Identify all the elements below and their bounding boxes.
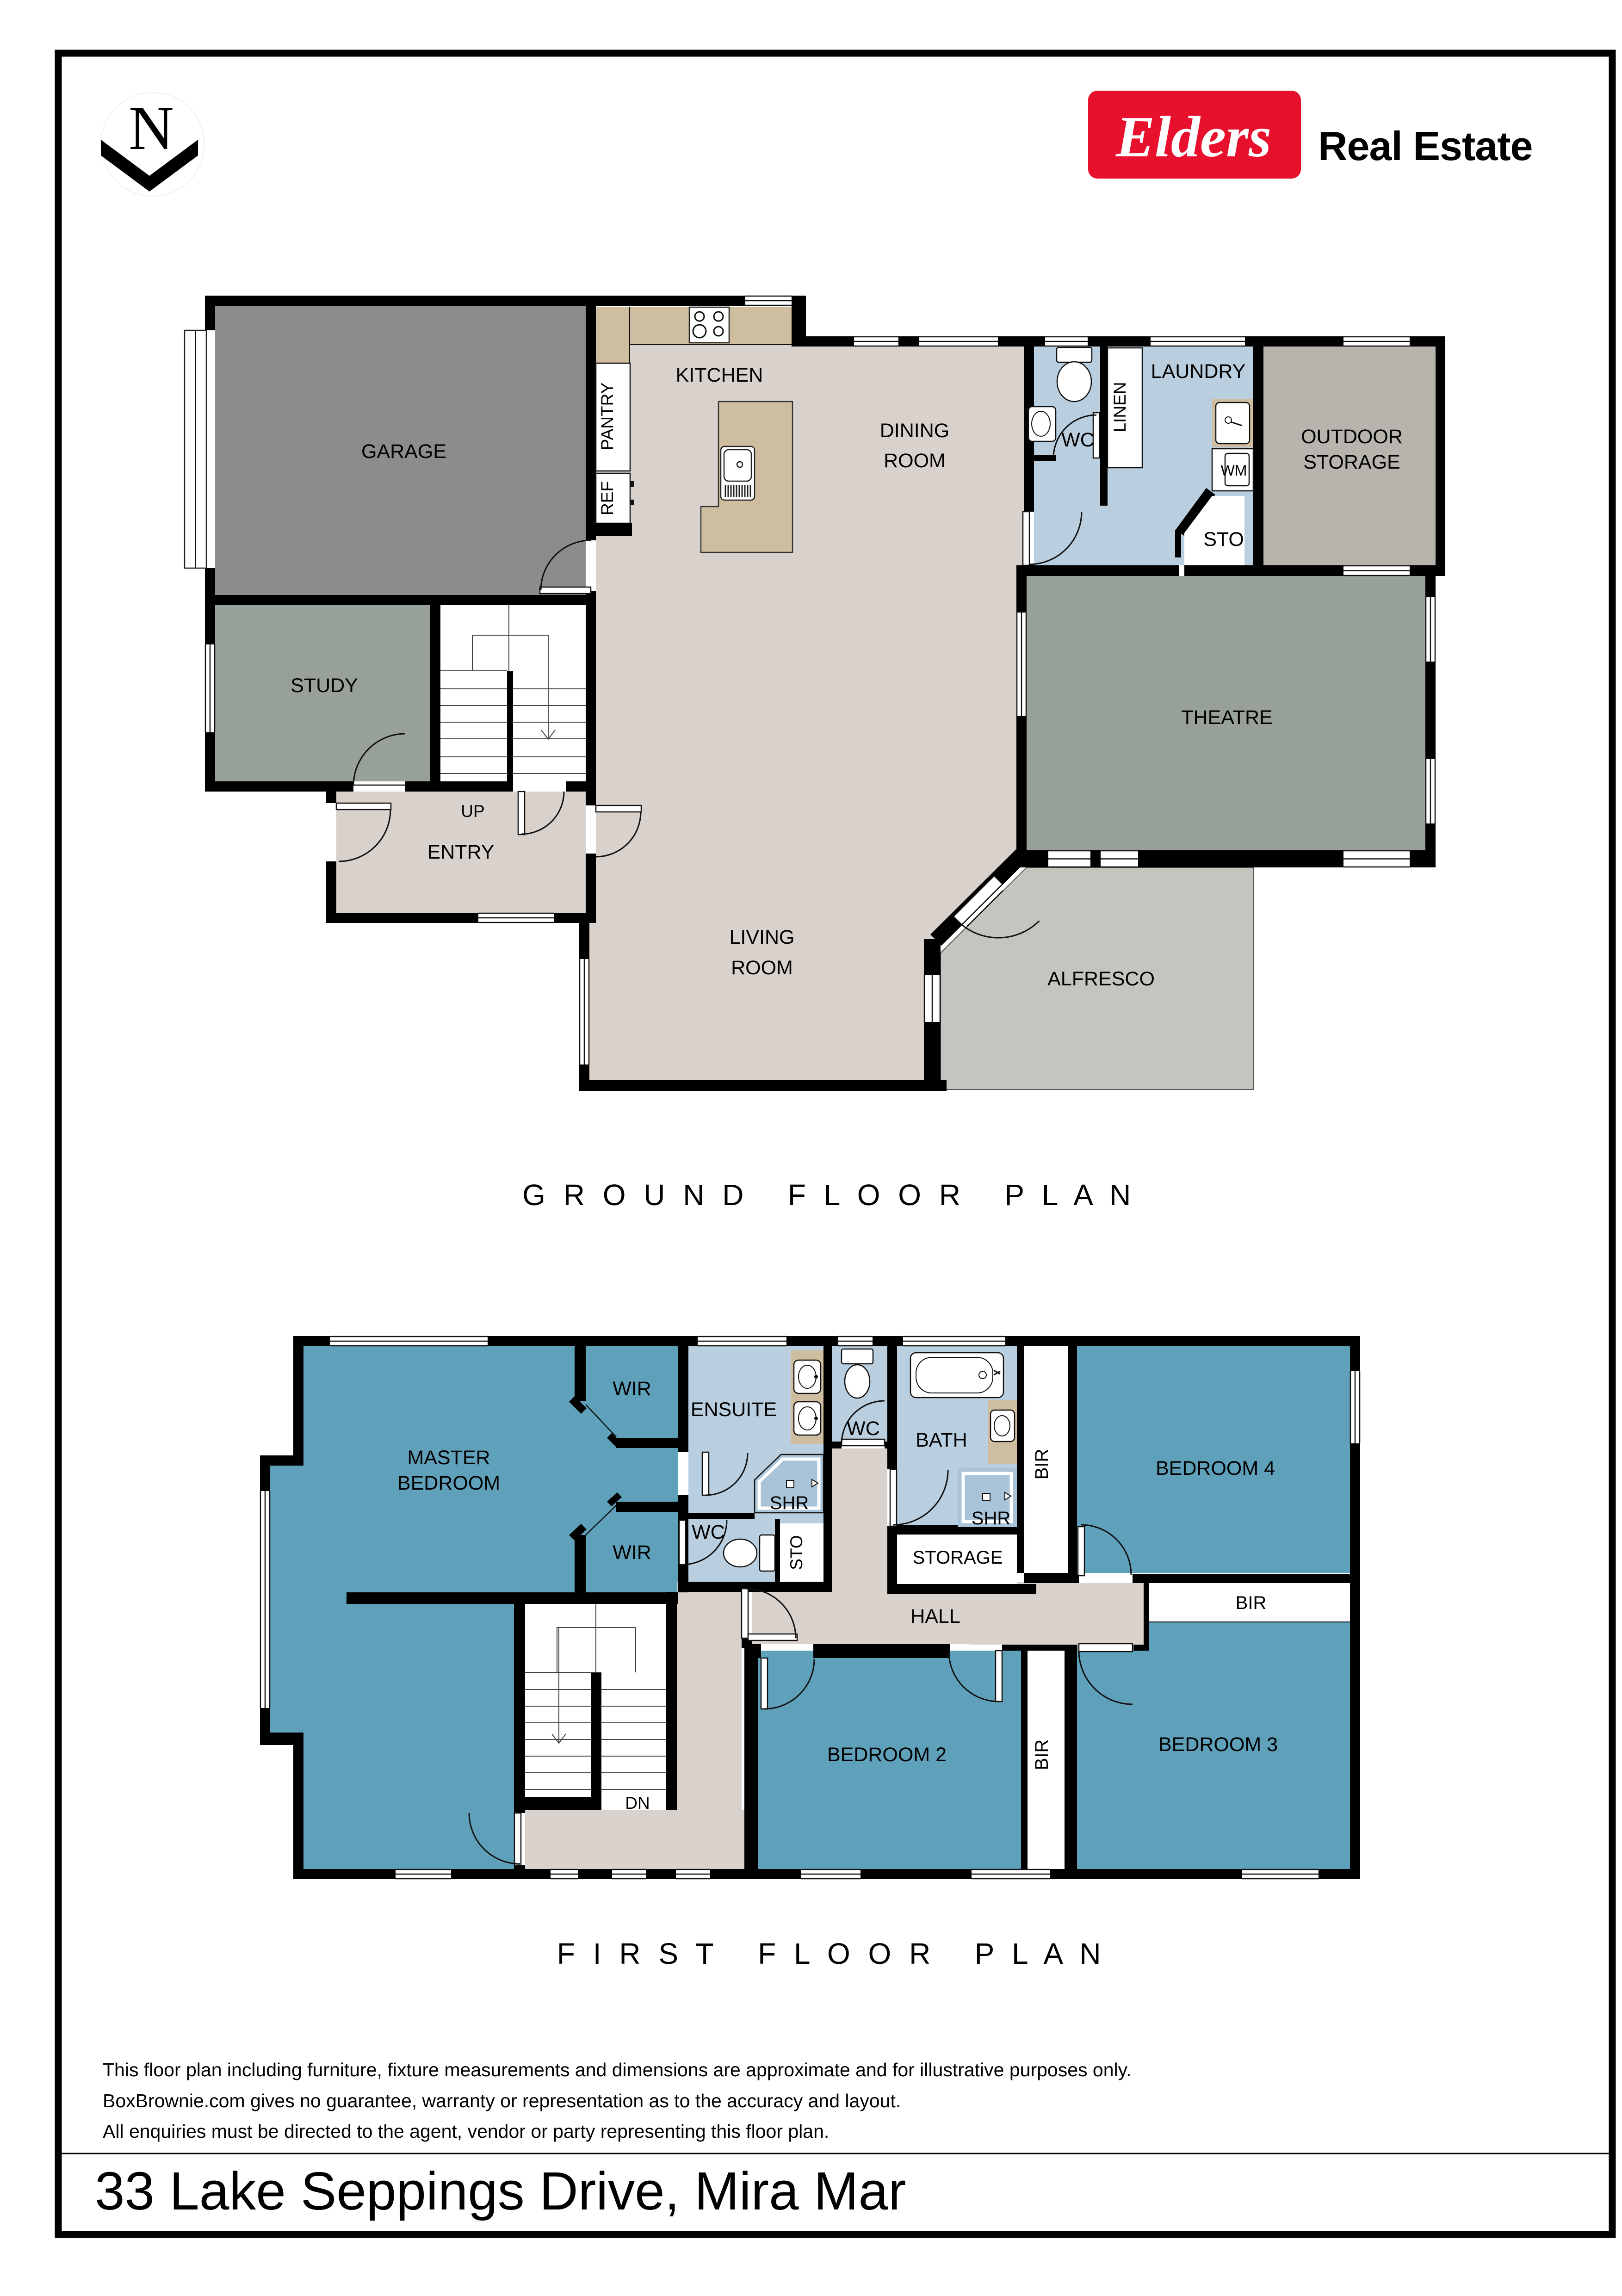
svg-text:THEATRE: THEATRE: [1181, 706, 1273, 729]
svg-text:F I R S T F L O O R P L A: F I R S T F L O O R P L A N: [557, 1937, 1106, 1970]
svg-text:ROOM: ROOM: [731, 957, 793, 979]
svg-text:SHR: SHR: [972, 1508, 1010, 1529]
svg-text:WM: WM: [1221, 462, 1247, 479]
svg-text:STO: STO: [1203, 528, 1244, 551]
svg-text:MASTER: MASTER: [407, 1447, 490, 1469]
svg-text:STUDY: STUDY: [291, 675, 358, 697]
svg-text:WIR: WIR: [613, 1378, 651, 1400]
svg-text:BEDROOM 4: BEDROOM 4: [1156, 1457, 1275, 1479]
svg-text:G R O U N D F L O O R P L: G R O U N D F L O O R P L A N: [522, 1178, 1136, 1212]
svg-text:BIR: BIR: [1032, 1739, 1052, 1770]
svg-text:WC: WC: [1061, 429, 1095, 451]
svg-text:LINEN: LINEN: [1110, 382, 1129, 433]
svg-text:BATH: BATH: [916, 1429, 967, 1451]
svg-text:WIR: WIR: [613, 1541, 651, 1564]
svg-text:UP: UP: [461, 802, 484, 821]
svg-text:ROOM: ROOM: [884, 450, 946, 472]
svg-text:REF: REF: [598, 481, 617, 515]
svg-text:LIVING: LIVING: [730, 926, 795, 948]
svg-text:BIR: BIR: [1236, 1593, 1267, 1613]
svg-text:33 Lake Seppings Drive, Mira M: 33 Lake Seppings Drive, Mira Mar: [95, 2161, 906, 2221]
svg-text:DN: DN: [625, 1794, 650, 1813]
svg-text:STORAGE: STORAGE: [913, 1547, 1003, 1568]
svg-text:STO: STO: [787, 1535, 806, 1570]
svg-text:BIR: BIR: [1032, 1449, 1052, 1480]
svg-text:DINING: DINING: [880, 420, 950, 442]
svg-text:OUTDOOR: OUTDOOR: [1301, 426, 1403, 448]
svg-text:ENTRY: ENTRY: [427, 841, 495, 863]
svg-text:WC: WC: [847, 1417, 880, 1440]
svg-text:BEDROOM: BEDROOM: [397, 1472, 500, 1494]
svg-text:BEDROOM 3: BEDROOM 3: [1158, 1733, 1278, 1756]
svg-text:LAUNDRY: LAUNDRY: [1151, 360, 1246, 383]
svg-text:This floor plan including furn: This floor plan including furniture, fix…: [103, 2059, 1131, 2080]
svg-text:PANTRY: PANTRY: [598, 383, 617, 451]
svg-text:BoxBrownie.com gives no guaran: BoxBrownie.com gives no guarantee, warra…: [103, 2090, 901, 2111]
svg-text:STORAGE: STORAGE: [1303, 451, 1400, 473]
svg-text:ENSUITE: ENSUITE: [691, 1399, 777, 1421]
svg-text:N: N: [129, 94, 174, 163]
svg-text:KITCHEN: KITCHEN: [676, 364, 763, 386]
svg-text:WC: WC: [692, 1521, 725, 1543]
svg-text:HALL: HALL: [910, 1605, 960, 1628]
svg-text:Real Estate: Real Estate: [1318, 123, 1532, 169]
svg-text:ALFRESCO: ALFRESCO: [1047, 968, 1155, 990]
svg-text:GARAGE: GARAGE: [361, 440, 446, 463]
svg-text:SHR: SHR: [770, 1493, 809, 1513]
svg-text:Elders: Elders: [1115, 105, 1271, 169]
svg-text:All enquiries must be directed: All enquiries must be directed to the ag…: [103, 2121, 829, 2142]
svg-text:BEDROOM 2: BEDROOM 2: [827, 1744, 947, 1766]
